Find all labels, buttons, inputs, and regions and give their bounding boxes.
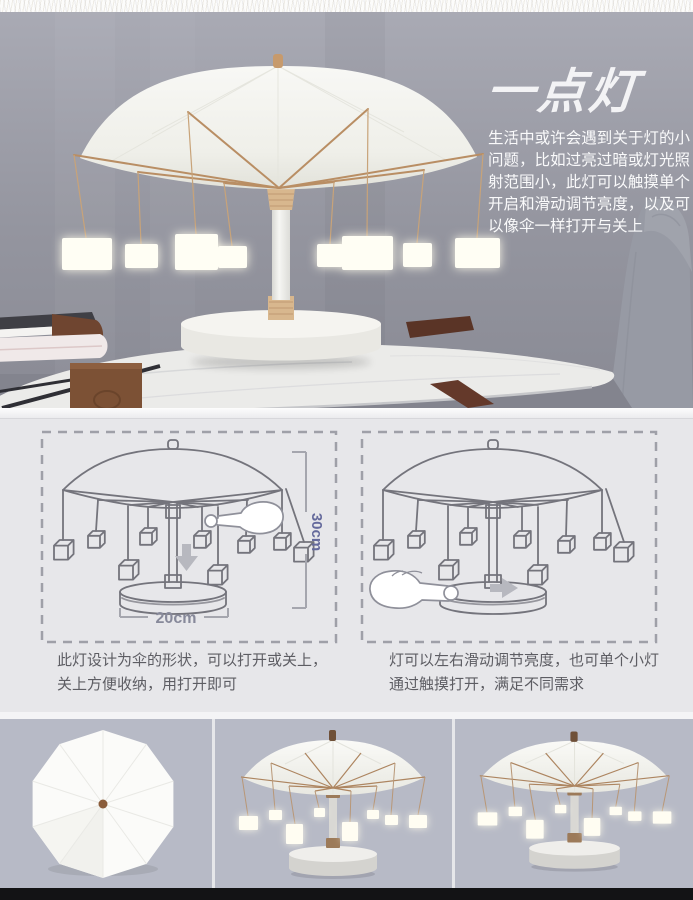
hero-photo: 一点灯 生活中或许会遇到关于灯的小问题，比如过亮过暗或灯光照射范围小，此灯可以触…: [0, 12, 693, 408]
diagram-section: 30cm 20cm 此灯设计为伞的形状，可以打开或关上，关上方便收纳，用打开即可…: [0, 419, 693, 712]
section-divider: [0, 408, 693, 419]
diagram-open-close: 30cm 20cm: [54, 440, 325, 627]
wood-block: [70, 363, 142, 408]
umbrella-tip-dot: [99, 800, 108, 809]
diagram-frame-right: [362, 432, 656, 642]
closed-umbrella-top-view: [33, 730, 174, 878]
hub-wood-collar: [267, 188, 295, 210]
product-title: 一点灯: [484, 52, 643, 122]
top-pattern-strip: [0, 0, 693, 12]
bottom-dark-strip: [0, 888, 693, 900]
caption-open-close: 此灯设计为伞的形状，可以打开或关上，关上方便收纳，用打开即可: [57, 649, 339, 697]
gallery-canvas: [0, 712, 693, 888]
arrow-right-icon: [490, 578, 518, 598]
lamp-pole: [272, 208, 290, 300]
gallery-section: [0, 712, 693, 888]
intro-paragraph: 生活中或许会遇到关于灯的小问题，比如过亮过暗或灯光照射范围小，此灯可以触摸单个开…: [488, 128, 690, 238]
finial: [273, 54, 283, 68]
design-poster-page: 一点灯 生活中或许会遇到关于灯的小问题，比如过亮过暗或灯光照射范围小，此灯可以触…: [0, 0, 693, 900]
touch-hand-icon: [205, 502, 283, 534]
caption-slide-dim: 灯可以左右滑动调节亮度，也可单个小灯通过触摸打开，满足不同需求: [389, 649, 659, 697]
press-hand-icon: [370, 571, 458, 608]
diagram-slide-dim: [370, 440, 634, 614]
height-dimension-label: 30cm: [308, 513, 325, 551]
width-dimension-label: 20cm: [156, 610, 197, 627]
gallery-top-strip: [0, 712, 693, 719]
